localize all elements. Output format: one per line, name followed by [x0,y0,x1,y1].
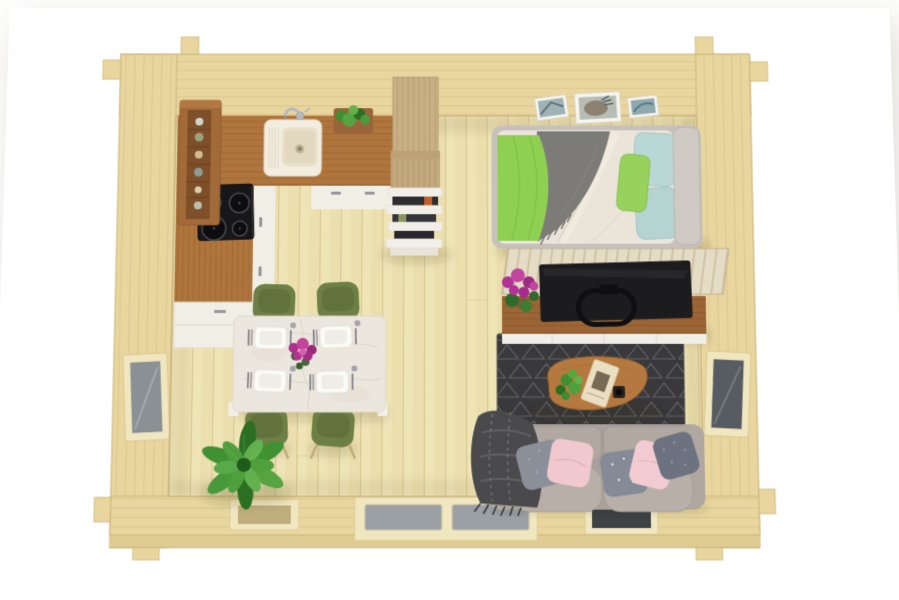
floorplan-render [0,8,899,600]
tv [539,260,693,325]
picture-1 [534,94,569,120]
picture-3 [627,95,659,118]
right-window [704,351,751,438]
render-canvas [0,0,899,600]
dining-table [228,316,388,416]
tall-cabinet-unit [386,77,442,255]
left-window [123,353,170,442]
table-cup [613,386,625,398]
pink-cushion-1 [546,437,595,488]
green-pillow [616,153,651,212]
headboard [673,127,701,244]
cabin-perspective-wrapper [0,8,899,600]
cabinet-front-top-run [311,186,393,209]
picture-2 [574,92,621,124]
open-shelf [386,188,442,256]
wall-shelf [178,100,222,225]
green-throw [497,135,548,241]
sofa [471,411,706,516]
dining-chair-top-right [316,281,360,321]
dining-chair-bottom-right [310,407,355,448]
orange-book [424,197,432,206]
door-glass-left [365,505,442,531]
double-bed [491,126,702,249]
herb-planter [333,105,373,133]
